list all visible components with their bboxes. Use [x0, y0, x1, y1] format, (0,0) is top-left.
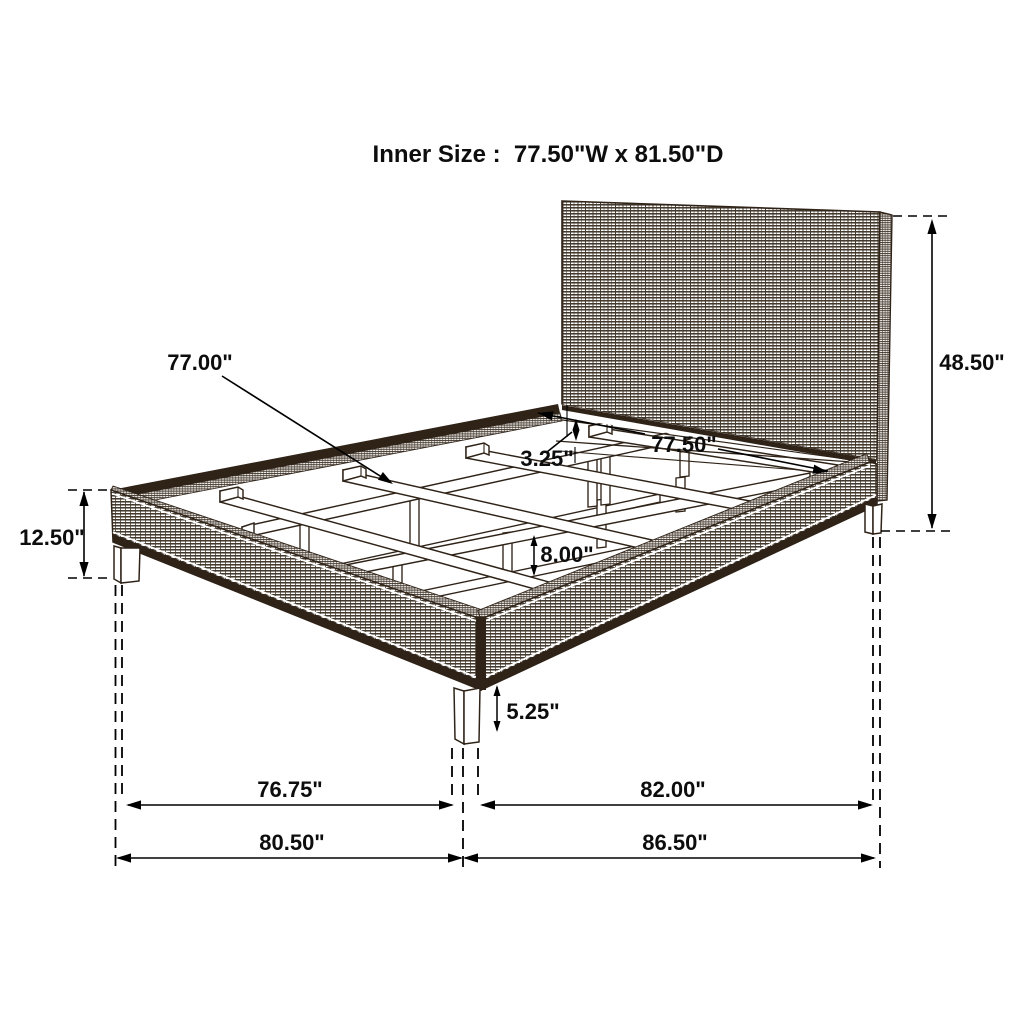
- svg-text:5.25": 5.25": [506, 699, 559, 724]
- svg-text:48.50": 48.50": [939, 350, 1004, 375]
- svg-text:8.00": 8.00": [540, 542, 593, 567]
- svg-text:Inner Size : 77.50"W x 81.50": Inner Size : 77.50"W x 81.50"D: [373, 141, 724, 168]
- svg-text:86.50": 86.50": [642, 830, 707, 855]
- svg-text:3.25": 3.25": [520, 446, 573, 471]
- svg-text:76.75": 76.75": [257, 777, 322, 802]
- svg-text:12.50": 12.50": [19, 525, 84, 550]
- svg-text:77.00": 77.00": [167, 350, 232, 375]
- svg-text:80.50": 80.50": [259, 830, 324, 855]
- svg-text:77.50": 77.50": [651, 432, 716, 457]
- svg-text:82.00": 82.00": [640, 777, 705, 802]
